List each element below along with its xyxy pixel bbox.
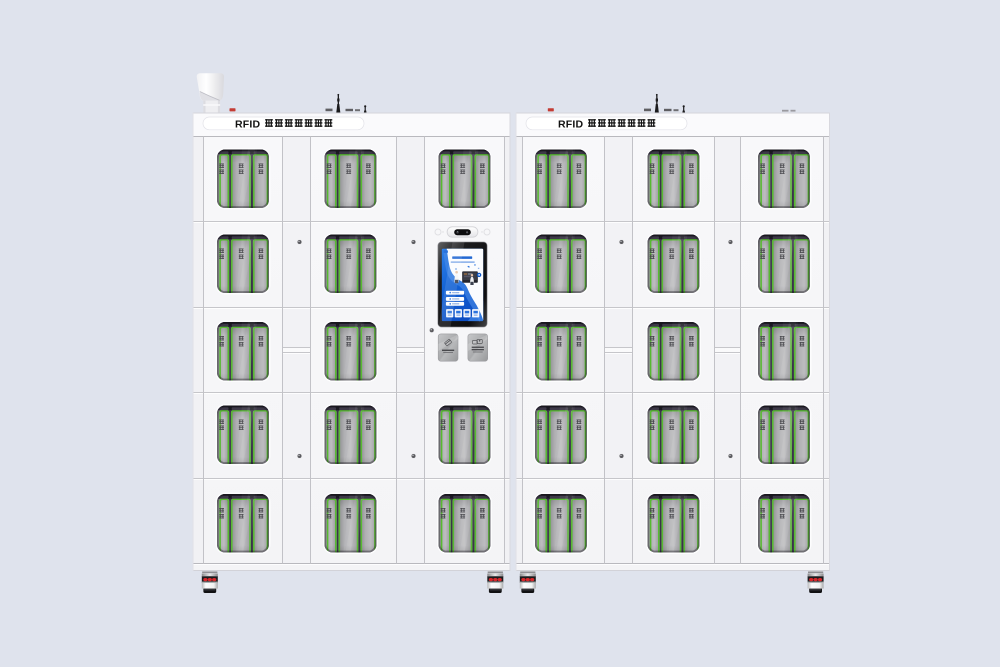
svg-text:RFID: RFID bbox=[235, 118, 261, 130]
svg-text:RFID: RFID bbox=[558, 118, 584, 130]
